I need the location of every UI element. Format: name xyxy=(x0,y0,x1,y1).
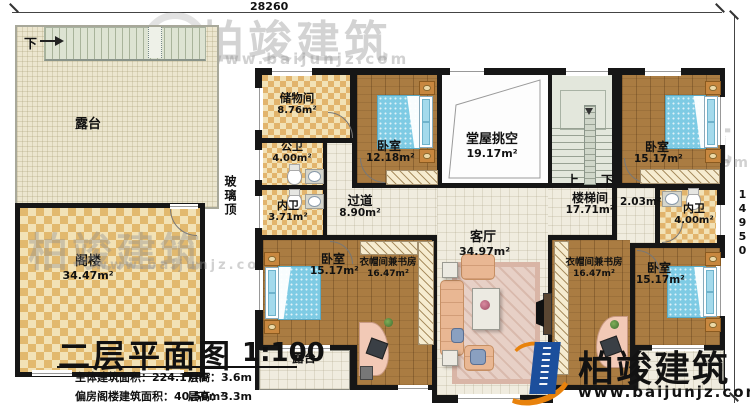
window xyxy=(255,270,263,310)
wardrobe xyxy=(386,170,438,185)
nightstand xyxy=(419,81,435,95)
stair-direction-arrow-icon xyxy=(585,108,593,115)
window xyxy=(716,258,725,316)
window xyxy=(450,67,484,76)
stat-row-height: 层高：3.3m xyxy=(188,388,252,404)
room-label-inner-bath-right: 内卫 4.00m² xyxy=(672,203,716,227)
stairs-down-label: 下 xyxy=(601,170,614,189)
title-underline xyxy=(57,366,297,368)
window xyxy=(398,385,428,391)
terrace-stairs xyxy=(44,27,206,61)
sink-icon xyxy=(308,171,321,182)
terrace-down-label: 下 xyxy=(24,33,37,52)
wardrobe xyxy=(640,169,720,184)
room-label-cloak-study-left: 衣帽间兼书房 16.47m² xyxy=(356,258,420,279)
sofa xyxy=(461,254,495,280)
stairs-break-mark xyxy=(148,27,162,58)
window xyxy=(645,67,681,76)
window xyxy=(566,67,608,76)
plant-icon xyxy=(384,318,393,327)
down-arrow-icon xyxy=(55,36,64,46)
watermark-url: www.baijunjz.com xyxy=(95,258,276,273)
nightstand xyxy=(705,318,721,332)
window xyxy=(272,67,312,76)
side-table xyxy=(442,350,458,366)
plant-icon xyxy=(610,320,619,329)
window xyxy=(255,150,263,180)
wardrobe xyxy=(418,241,434,345)
wardrobe xyxy=(360,241,418,255)
speaker xyxy=(360,366,373,380)
stairs-up-label: 上 xyxy=(566,170,579,189)
bed-pillows xyxy=(265,267,279,319)
room-label-living: 客厅 34.97m² xyxy=(459,231,507,258)
room-label-bedroom-top: 卧室 12.18m² xyxy=(366,140,412,165)
nightstand xyxy=(705,149,721,163)
stair-rail xyxy=(584,105,596,185)
hall-void-outline xyxy=(442,75,548,183)
tv-stand xyxy=(543,293,552,335)
nightstand xyxy=(705,81,721,95)
side-table xyxy=(442,262,458,278)
bed-pillows xyxy=(703,267,717,317)
room-label-terrace-top: 露台 xyxy=(68,118,108,133)
flower-decor xyxy=(480,300,490,310)
window xyxy=(255,88,263,130)
sofa xyxy=(440,280,464,356)
nightstand xyxy=(264,320,280,334)
right-dimension-label: 14950 xyxy=(736,188,749,258)
floor-plan: 28260 14950 柏竣建筑 www.baijunjz.com 柏竣建筑 w… xyxy=(0,0,750,411)
room-label-cloak-study-right: 衣帽间兼书房 16.47m² xyxy=(562,258,626,279)
glass-roof-label: 玻璃顶 xyxy=(222,175,239,217)
toilet-icon xyxy=(287,168,302,185)
room-label-corridor: 过道 8.90m² xyxy=(337,194,383,220)
room-label-inner-bath-left: 内卫 3.71m² xyxy=(266,200,310,224)
room-label-bedroom-top-right: 卧室 15.17m² xyxy=(634,141,680,166)
brand-url: www.baijunjz.com xyxy=(578,383,750,401)
plan-scale: 1:100 xyxy=(242,338,325,368)
nightstand xyxy=(705,252,721,266)
room-label-public-bath: 公卫 4.00m² xyxy=(270,141,314,165)
window xyxy=(255,196,263,228)
right-dimension-line xyxy=(734,15,735,403)
watermark-url: www.baijunjz.com xyxy=(208,50,409,68)
cushion xyxy=(470,349,486,365)
room-label-vestibule: 2.03m² xyxy=(620,197,656,209)
room-label-stairwell: 楼梯间 17.71m² xyxy=(562,192,618,217)
room-label-bedroom-bottom-right: 卧室 15.17m² xyxy=(636,262,682,287)
down-arrow-line xyxy=(40,40,55,42)
room-label-hall-void: 堂屋挑空 19.17m² xyxy=(460,133,524,160)
nightstand xyxy=(264,252,280,266)
bed-pillows xyxy=(419,96,433,148)
cushion xyxy=(451,328,464,343)
room-label-storage: 储物间 8.76m² xyxy=(272,92,322,116)
tv-icon xyxy=(536,299,544,327)
nightstand xyxy=(419,149,435,163)
logo-building-icon xyxy=(529,342,560,394)
window xyxy=(716,205,725,235)
room-label-bedroom-bottom-left: 卧室 15.17m² xyxy=(310,253,356,278)
logo-building-windows xyxy=(539,347,551,389)
bed-pillows xyxy=(704,96,718,148)
stair-landing-rail xyxy=(560,90,606,130)
stat-row-height: 层高：3.6m xyxy=(188,369,252,385)
